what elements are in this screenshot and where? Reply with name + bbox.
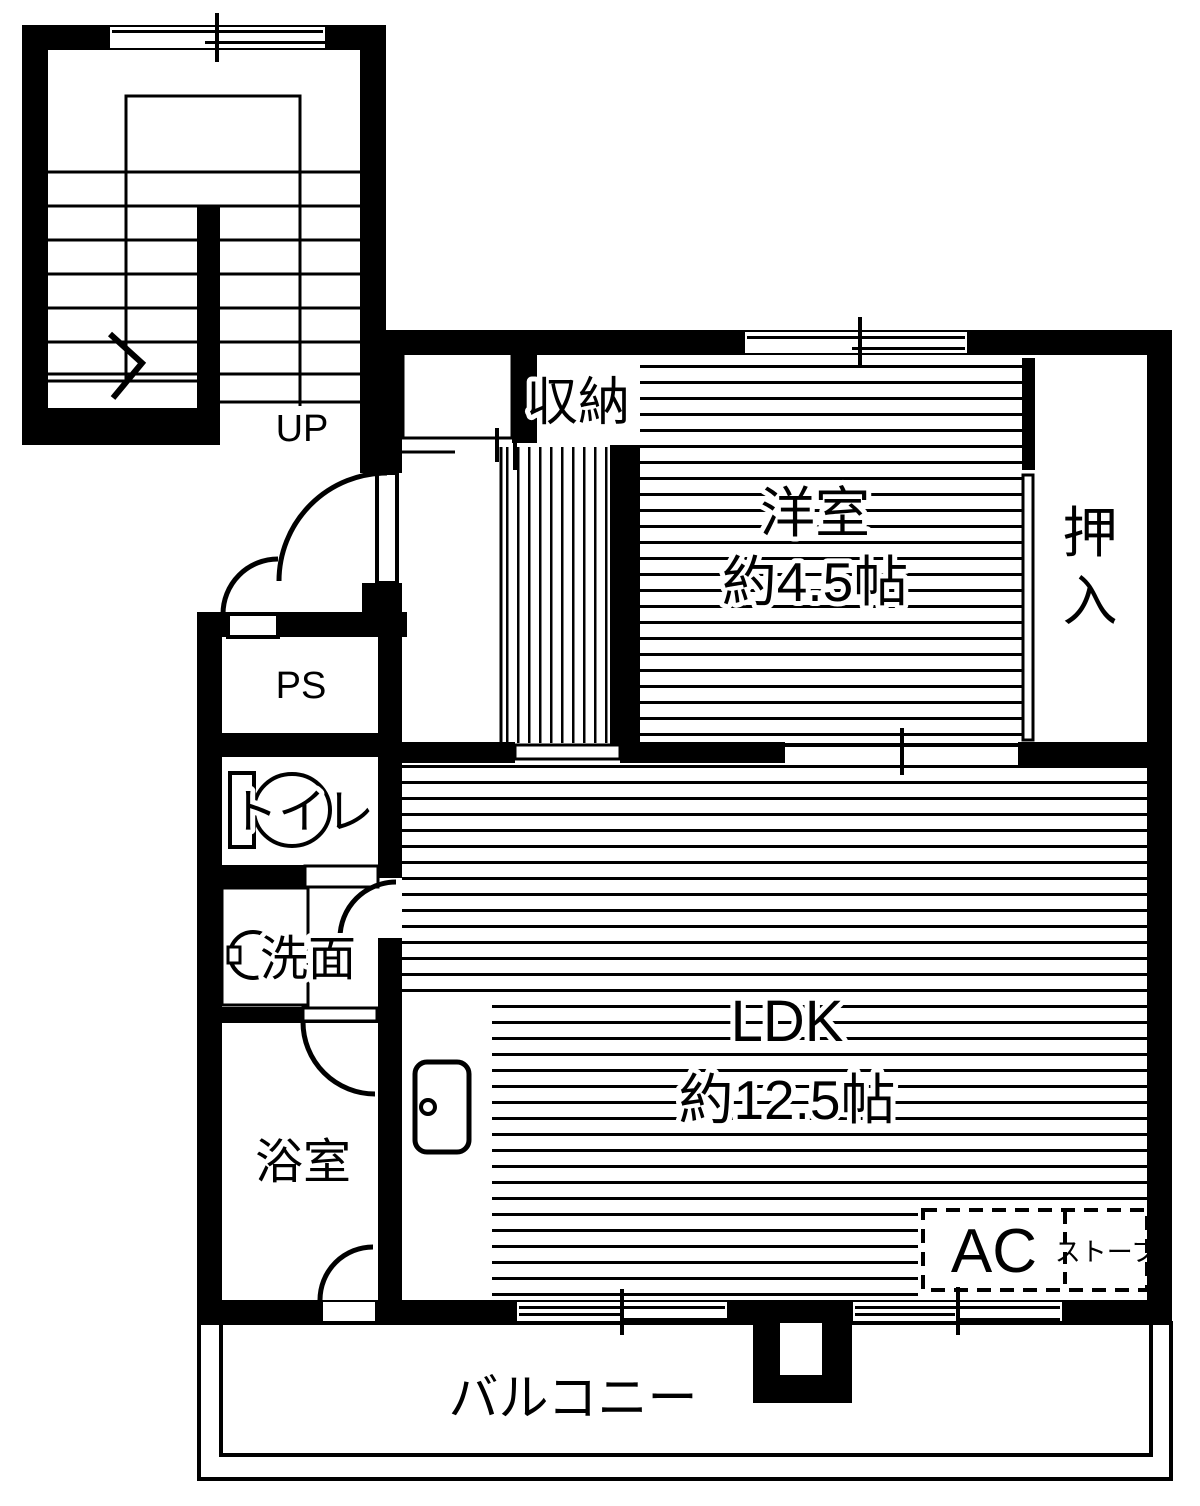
bath-balcony-opening: [323, 1302, 375, 1323]
stair-wall-bottom: [22, 408, 220, 445]
storage-closet-floor: [503, 447, 610, 743]
entry-small-door-arc: [223, 559, 278, 614]
ldk-size: 約12.5帖: [678, 1069, 895, 1131]
entry-small-door-leaf: [228, 614, 278, 637]
storage-label: 収納: [526, 374, 630, 432]
closet-western-wall: [610, 445, 640, 745]
ldk-label: LDK: [731, 989, 844, 1054]
toilet-bottom-wall: [197, 865, 307, 888]
stair-window: [110, 13, 325, 62]
stove-label: ストーブ: [1055, 1237, 1157, 1267]
entrance-door-arc: [279, 473, 387, 581]
entrance-door-leaf: [377, 473, 397, 583]
oshiire-label-char2: 入: [1062, 570, 1117, 632]
hall-ldk-wall-a: [402, 742, 515, 763]
ac-label: AC: [951, 1217, 1037, 1286]
western-room-size: 約4.5帖: [722, 551, 908, 613]
bath-door-arc: [303, 1022, 375, 1094]
toilet-door-leaf: [305, 866, 378, 887]
washbasin-faucet: [228, 947, 240, 963]
western-oshiire-wall: [1022, 358, 1035, 470]
storage-sliding-door: [515, 745, 620, 759]
unit-left-wall: [197, 612, 222, 1323]
balcony-label: バルコニー: [449, 1370, 698, 1426]
stair-landing: [126, 96, 300, 172]
washroom-label: 洗面: [260, 933, 356, 986]
ps-label: PS: [276, 665, 327, 707]
bathroom-label: 浴室: [255, 1136, 351, 1189]
bath-door-leaf: [303, 1008, 377, 1021]
kitchen-sink-drain: [421, 1100, 435, 1114]
stair-wall-center: [197, 205, 220, 445]
toilet-label: トイレ: [230, 786, 374, 839]
stair-wall-left: [22, 25, 48, 445]
oshiire-label-char1: 押: [1062, 502, 1117, 564]
entry-cabinet: [403, 352, 512, 438]
oshiire-sliding-door: [1023, 475, 1033, 740]
western-room-label: 洋室: [760, 482, 870, 544]
floorplan: UP 収納 洋室 約4.5帖 押 入 PS トイレ 洗面 浴室 LDK 約12.…: [0, 0, 1200, 1506]
bath-balcony-door-arc: [320, 1247, 373, 1300]
balcony-divider-notch: [780, 1323, 822, 1375]
hall-ldk-wall-c: [1018, 742, 1172, 766]
up-label: UP: [276, 408, 329, 450]
washroom-door-opening: [378, 878, 402, 938]
ps-bottom-wall: [197, 733, 402, 757]
unit-right-wall: [1147, 330, 1172, 1323]
hall-ldk-wall-b: [620, 742, 785, 763]
